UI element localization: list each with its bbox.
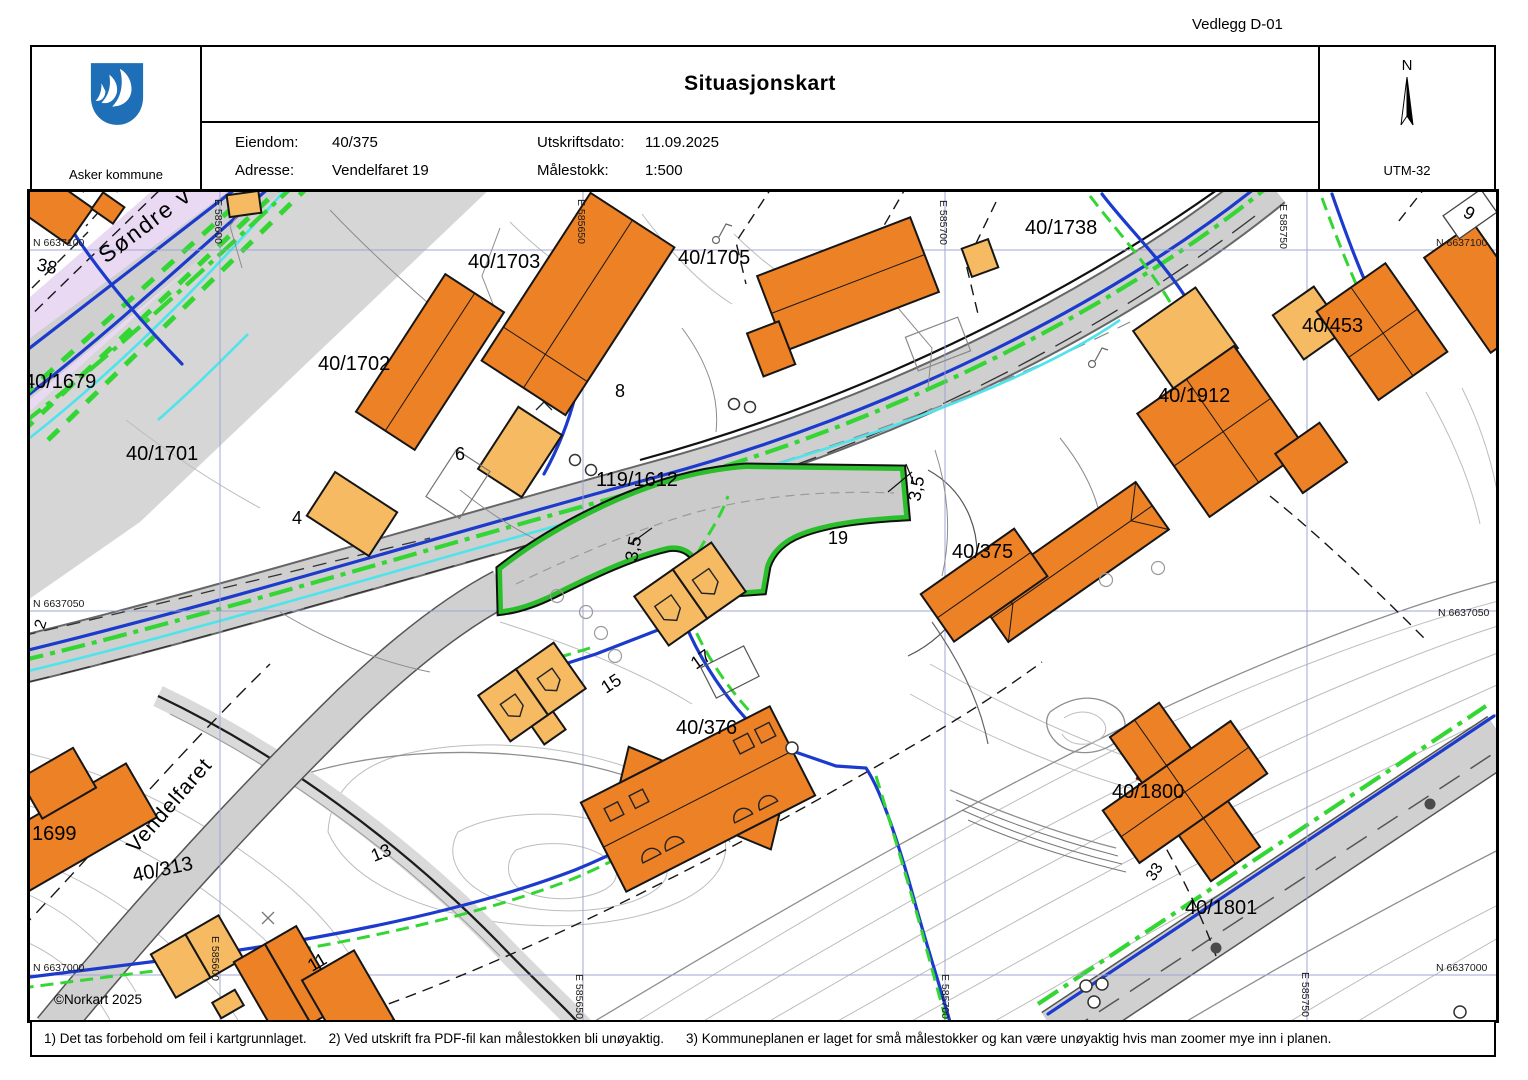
grid-label-n6637100-left: N 6637100 xyxy=(33,237,85,249)
field-eiendom: Eiendom: 40/375 xyxy=(235,134,537,151)
parcel-label-40-1912: 40/1912 xyxy=(1158,385,1230,407)
field-malestokk: Målestokk: 1:500 xyxy=(537,162,719,179)
field-eiendom-value: 40/375 xyxy=(332,134,378,151)
house-number-19: 19 xyxy=(828,528,848,548)
field-adresse-label: Adresse: xyxy=(235,162,332,179)
situation-map: N 6637100 N 6637100 N 6637050 N 6637050 … xyxy=(30,192,1496,1020)
grid-label-n6637100-right: N 6637100 xyxy=(1436,237,1488,249)
logo-text: Asker kommune xyxy=(32,167,200,182)
field-eiendom-label: Eiendom: xyxy=(235,134,332,151)
parcel-label-119-1612: 119/1612 xyxy=(596,469,678,491)
parcel-label-40-1701: 40/1701 xyxy=(126,443,198,465)
measurement-3-5-a: 3,5 xyxy=(621,535,645,563)
grid-label-e585600-top: E 585600 xyxy=(212,199,224,244)
house-number-4: 4 xyxy=(292,508,302,528)
house-number-8: 8 xyxy=(615,381,625,401)
grid-label-e585650-bottom: E 585650 xyxy=(573,974,585,1019)
parcel-label-40-375: 40/375 xyxy=(952,541,1013,563)
field-utskriftsdato: Utskriftsdato: 11.09.2025 xyxy=(537,134,719,151)
footer-note-1: 1) Det tas forbehold om feil i kartgrunn… xyxy=(44,1031,307,1046)
map-canvas: N 6637100 N 6637100 N 6637050 N 6637050 … xyxy=(27,189,1499,1023)
grid-label-n6637000-right: N 6637000 xyxy=(1436,962,1488,974)
parcel-label-40-1705: 40/1705 xyxy=(678,247,750,269)
parcel-label-40-1738: 40/1738 xyxy=(1025,217,1097,239)
parcel-label-1699: 1699 xyxy=(32,823,77,845)
grid-label-e585600-bottom: E 585600 xyxy=(209,936,221,981)
footer-note-3: 3) Kommuneplanen er laget for små målest… xyxy=(686,1031,1331,1046)
parcel-label-40-1801: 40/1801 xyxy=(1185,897,1257,919)
grid-label-e585700-bottom: E 585700 xyxy=(939,974,951,1019)
house-number-38: 38 xyxy=(35,254,59,278)
field-adresse: Adresse: Vendelfaret 19 xyxy=(235,162,537,179)
north-arrow-icon xyxy=(1397,75,1417,135)
utm-zone-label: UTM-32 xyxy=(1320,163,1494,178)
house-number-6: 6 xyxy=(455,444,465,464)
grid-label-e585750-top: E 585750 xyxy=(1277,204,1289,249)
header-fields: Eiendom: 40/375 Adresse: Vendelfaret 19 … xyxy=(202,123,1318,190)
map-header: Asker kommune Situasjonskart Eiendom: 40… xyxy=(30,45,1496,192)
measurement-3-5-b: 3,5 xyxy=(904,475,928,503)
field-adresse-value: Vendelfaret 19 xyxy=(332,162,429,179)
north-label: N xyxy=(1320,57,1494,74)
situasjonskart-page: Vedlegg D-01 Asker kommune Situasjonskar… xyxy=(0,0,1528,1080)
field-utskriftsdato-label: Utskriftsdato: xyxy=(537,134,645,151)
field-utskriftsdato-value: 11.09.2025 xyxy=(645,134,719,151)
parcel-label-40-1702: 40/1702 xyxy=(318,353,390,375)
grid-label-n6637050-right: N 6637050 xyxy=(1438,607,1490,619)
grid-label-n6637000-left: N 6637000 xyxy=(33,962,85,974)
compass-box: N UTM-32 xyxy=(1320,47,1494,190)
parcel-label-40-453: 40/453 xyxy=(1302,315,1363,337)
grid-label-e585700-top: E 585700 xyxy=(937,200,949,245)
asker-kommune-logo xyxy=(88,59,146,129)
footer-note-2: 2) Ved utskrift fra PDF-fil kan målestok… xyxy=(329,1031,664,1046)
title-box: Situasjonskart Eiendom: 40/375 Adresse: … xyxy=(202,47,1320,190)
copyright-norkart: ©Norkart 2025 xyxy=(54,992,142,1007)
attachment-label: Vedlegg D-01 xyxy=(1192,16,1283,33)
grid-label-n6637050-left: N 6637050 xyxy=(33,598,85,610)
parcel-label-40-376: 40/376 xyxy=(676,717,737,739)
page-title: Situasjonskart xyxy=(684,72,836,96)
logo-box: Asker kommune xyxy=(32,47,202,190)
field-malestokk-value: 1:500 xyxy=(645,162,683,179)
field-malestokk-label: Målestokk: xyxy=(537,162,645,179)
parcel-label-40-1800: 40/1800 xyxy=(1112,781,1184,803)
parcel-label-40-1679: 40/1679 xyxy=(30,371,96,393)
grid-label-e585750-bottom: E 585750 xyxy=(1299,972,1311,1017)
parcel-label-40-1703: 40/1703 xyxy=(468,251,540,273)
map-disclaimer-footer: 1) Det tas forbehold om feil i kartgrunn… xyxy=(30,1020,1496,1057)
grid-label-e585650-top: E 585650 xyxy=(575,199,587,244)
